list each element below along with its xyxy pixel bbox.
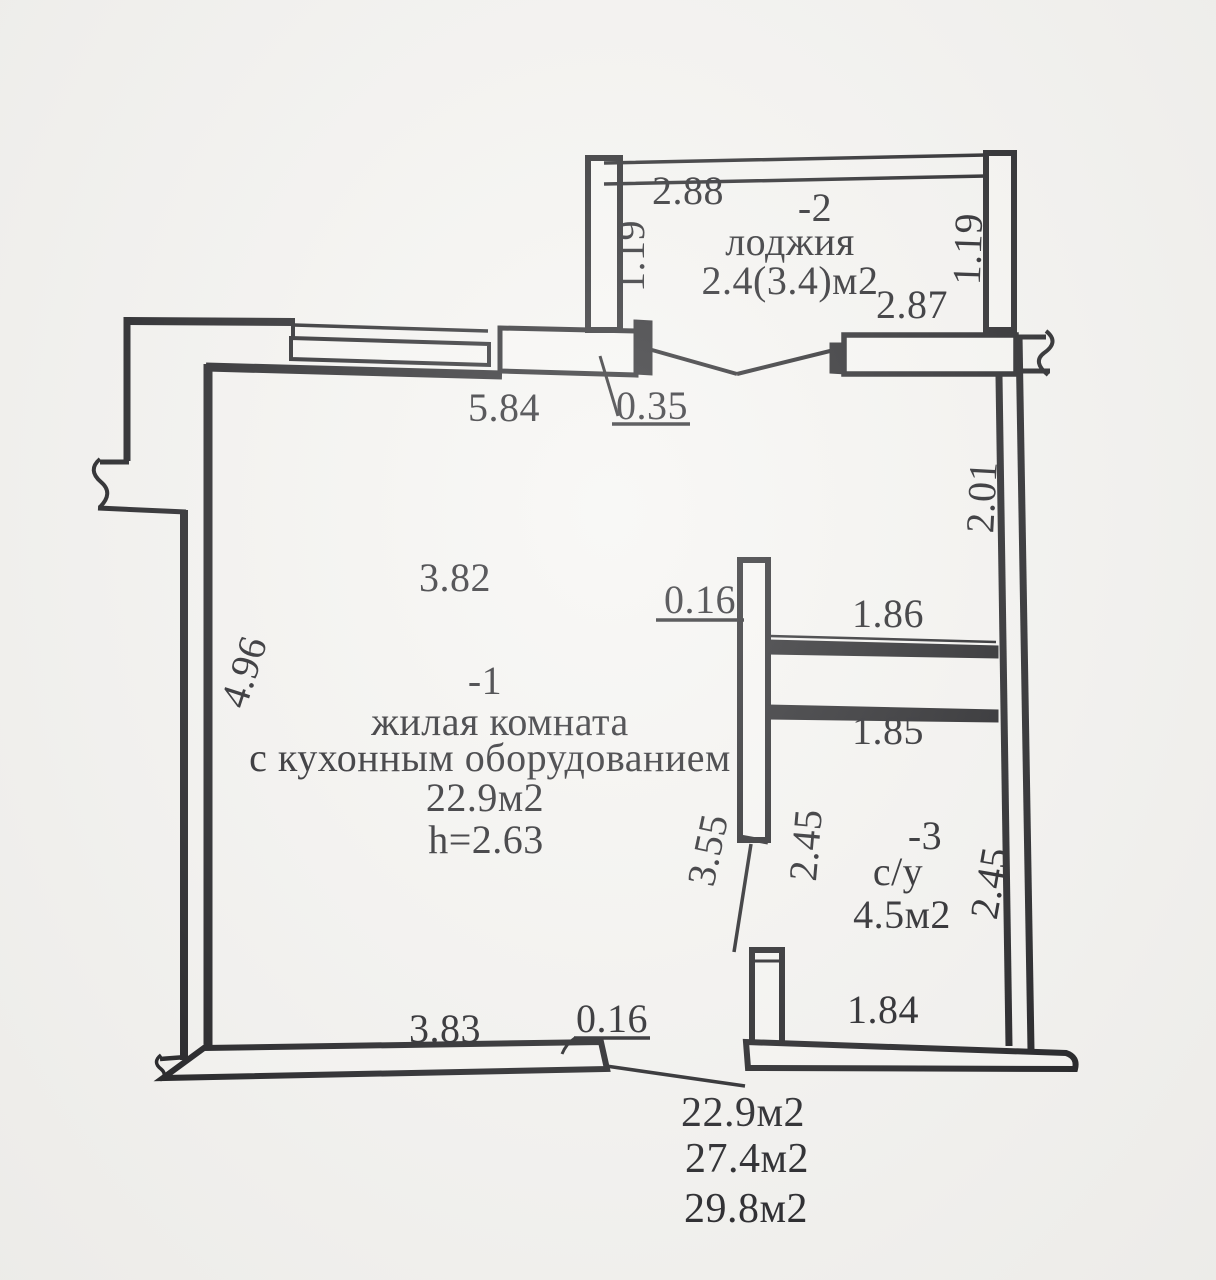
bathroom-dim-top-label: 1.86 xyxy=(852,594,924,634)
wall-bottom-room xyxy=(163,1042,607,1078)
wall-top-outer xyxy=(127,321,293,322)
partition-thickness-label: 0.16 xyxy=(664,580,736,620)
loggia-dim-left-label: 1.19 xyxy=(611,220,651,292)
loggia-area-label: 2.4(3.4)м2 xyxy=(702,261,879,301)
window-wall-dim-label: 5.84 xyxy=(468,388,540,428)
right-wall-upper-dim-label: 2.01 xyxy=(960,460,1004,534)
wall-bottom-bathroom xyxy=(746,1042,1076,1069)
bathroom-area-label: 4.5м2 xyxy=(853,895,951,935)
window-sill xyxy=(291,338,489,365)
total-overall-area-label: 29.8м2 xyxy=(684,1188,808,1230)
bathroom-name-label: с/у xyxy=(873,852,923,892)
wall-right-outer xyxy=(1019,335,1031,1050)
bathroom-dim-left-label: 2.45 xyxy=(783,807,829,882)
wall-left-protrusion-bottom xyxy=(98,508,186,512)
balcony-door-dim-label: 0.35 xyxy=(616,386,688,426)
wall-break-left xyxy=(94,459,108,507)
room-dim-bottom-label: 3.83 xyxy=(409,1009,481,1049)
loggia-dim-bottom-label: 2.87 xyxy=(876,285,948,325)
balcony-door-jamb xyxy=(634,320,652,375)
room-id-label: -1 xyxy=(468,661,502,701)
floorplan-drawing xyxy=(0,0,1216,1280)
leader-totals xyxy=(606,1066,745,1086)
loggia-name-label: лоджия xyxy=(725,222,855,262)
window-line-outer xyxy=(294,325,488,331)
wall-top-inner xyxy=(206,367,502,375)
room-area-label: 22.9м2 xyxy=(426,778,544,818)
bathroom-wall-upper xyxy=(768,640,998,658)
bathroom-dim-mid-label: 1.85 xyxy=(852,711,924,751)
room-dim-top-label: 3.82 xyxy=(419,558,491,598)
total-living-area-label: 22.9м2 xyxy=(681,1092,805,1134)
door-stub xyxy=(752,950,782,1046)
loggia-dim-top-label: 2.88 xyxy=(652,171,724,211)
wall-bottom-left-step xyxy=(160,1057,186,1059)
wall-under-loggia xyxy=(844,335,1016,374)
leader-partition-length xyxy=(734,844,751,952)
room-height-label: h=2.63 xyxy=(428,820,544,860)
floorplan-page: 2.88 -2 лоджия 2.4(3.4)м2 2.87 1.19 1.19… xyxy=(0,0,1216,1280)
partition-wall xyxy=(740,560,768,840)
wall-under-loggia-jamb xyxy=(830,343,846,374)
bathroom-dim-bottom-label: 1.84 xyxy=(847,990,919,1030)
room-name-line2-label: с кухонным оборудованием xyxy=(249,738,731,778)
wall-box-top xyxy=(500,328,636,375)
balcony-door-swing xyxy=(652,350,830,374)
loggia-dim-right-label: 1.19 xyxy=(947,212,989,285)
total-apartment-area-label: 27.4м2 xyxy=(685,1138,809,1180)
bottom-wall-thickness-label: 0.16 xyxy=(576,999,648,1039)
